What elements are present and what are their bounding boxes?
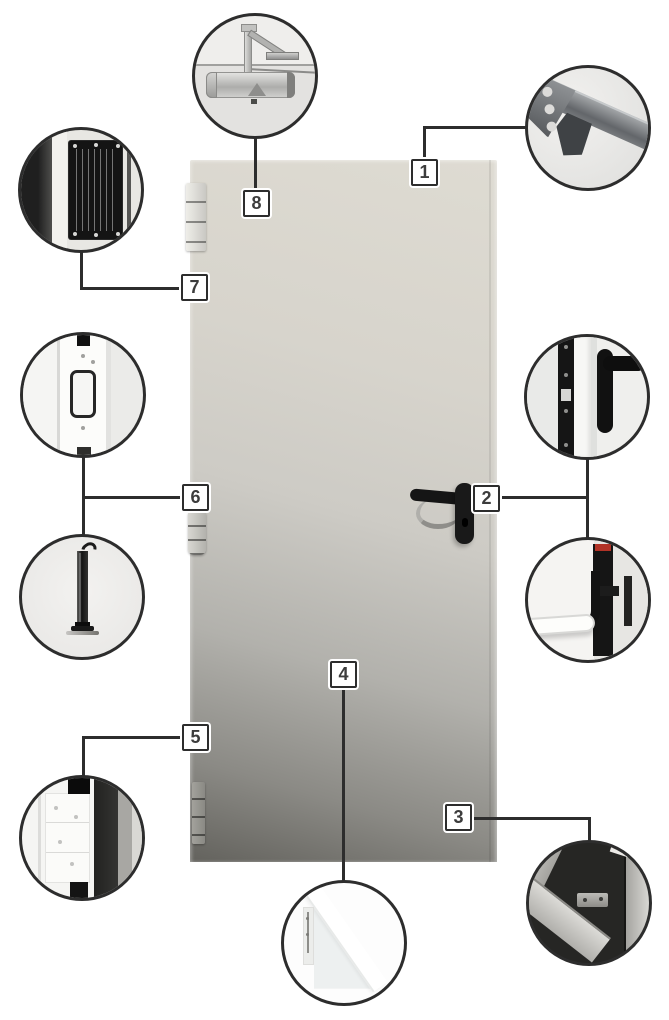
detail-panic-bar	[525, 537, 651, 663]
detail-rating-plate	[18, 127, 144, 253]
frame-line	[38, 778, 42, 898]
bracket-group	[525, 65, 651, 191]
connector-line-7	[80, 251, 83, 290]
hinge-seam	[46, 852, 89, 853]
rating-plate-text-lines	[76, 149, 113, 231]
push-bar-icon	[525, 613, 596, 636]
gap-bottom	[70, 882, 88, 898]
detail-door-closer	[192, 13, 318, 139]
screw-icon	[81, 426, 85, 430]
callout-box-3: 3	[445, 804, 472, 831]
callout-box-7: 7	[181, 274, 208, 301]
connector-line-3	[588, 817, 591, 842]
connector-line-3	[471, 817, 591, 820]
frame-face	[23, 335, 59, 455]
diagram-canvas: 1 2 3 4 5 6 7 8	[0, 0, 669, 1020]
frame-edge-line	[195, 64, 315, 66]
gap-top	[68, 778, 91, 794]
callout-number: 3	[453, 807, 463, 828]
profile-shade	[106, 335, 111, 455]
connector-line-1	[423, 126, 528, 129]
hinge-leaf-icon	[46, 794, 89, 883]
closer-end-cap	[287, 72, 294, 97]
callout-number: 6	[190, 487, 200, 508]
screw-icon	[306, 917, 309, 920]
screw-icon	[564, 443, 568, 447]
detail-flush-bolt-rod	[19, 534, 145, 660]
connector-line-1	[423, 127, 426, 161]
door-edge-shade	[591, 337, 597, 457]
callout-number: 5	[190, 727, 200, 748]
red-accent	[595, 544, 611, 551]
callout-number: 8	[251, 193, 261, 214]
callout-box-8: 8	[243, 190, 270, 217]
detail-strike-plate	[20, 332, 146, 458]
screw-icon	[599, 897, 603, 901]
connector-line-5	[82, 736, 184, 739]
rod-highlight	[79, 553, 81, 624]
connector-line-5	[82, 736, 85, 777]
connector-line-2	[497, 496, 588, 499]
door-face-band	[118, 778, 132, 898]
rod-base	[71, 626, 94, 631]
connector-line-8	[254, 137, 257, 193]
detail-frame-threshold-corner	[526, 840, 652, 966]
detail-hinge	[19, 775, 145, 901]
hinge-middle-icon	[188, 513, 206, 555]
screw-icon	[74, 815, 78, 819]
callout-number: 7	[189, 277, 199, 298]
keyhole-icon	[462, 518, 468, 527]
sill-profile-band	[526, 870, 611, 963]
callout-box-5: 5	[182, 724, 209, 751]
callout-box-6: 6	[182, 484, 209, 511]
screw-icon	[583, 898, 587, 902]
door-face-light-band	[132, 778, 142, 898]
screw-icon	[116, 232, 120, 236]
detail-lever-handle	[524, 334, 650, 460]
screw-icon	[73, 232, 77, 236]
closer-end-plate	[206, 72, 217, 97]
screw-icon	[70, 862, 74, 866]
callout-box-1: 1	[411, 159, 438, 186]
hinge-top-icon	[186, 183, 206, 251]
door-edge-face	[574, 337, 591, 457]
door-gap-line	[127, 130, 132, 250]
door-edge-band	[527, 337, 558, 457]
hinge-seam	[46, 822, 89, 823]
corner-plate-icon	[577, 893, 608, 906]
callout-number: 2	[481, 488, 491, 509]
door-handle-escutcheon	[455, 483, 474, 544]
callout-box-4: 4	[330, 661, 357, 688]
connector-line-7	[80, 287, 184, 290]
connector-line-2	[586, 458, 589, 538]
gap-top	[77, 335, 90, 346]
connector-line-6	[82, 496, 183, 499]
screw-icon	[81, 354, 85, 358]
door-edge-shadow	[21, 130, 52, 250]
hinge-bottom-icon	[192, 782, 205, 844]
connector-line-4	[342, 686, 345, 882]
latch-bolt-icon	[561, 389, 572, 401]
detail-door-corner-section	[281, 880, 407, 1006]
callout-box-2: 2	[473, 485, 500, 512]
callout-number: 1	[419, 162, 429, 183]
closer-arm-shoe	[266, 52, 299, 60]
callout-number: 4	[338, 664, 348, 685]
door-edge-dark-band	[94, 778, 118, 898]
gap-bottom	[77, 447, 91, 455]
door-edge-band	[52, 130, 66, 250]
closer-bracket	[248, 83, 266, 96]
rod-foot	[66, 631, 98, 636]
strike-recess-icon	[70, 370, 96, 418]
lever-handle-icon	[603, 356, 646, 370]
detail-frame-corner-bracket	[525, 65, 651, 191]
closer-valve	[251, 99, 257, 104]
frame-strip	[624, 576, 632, 626]
